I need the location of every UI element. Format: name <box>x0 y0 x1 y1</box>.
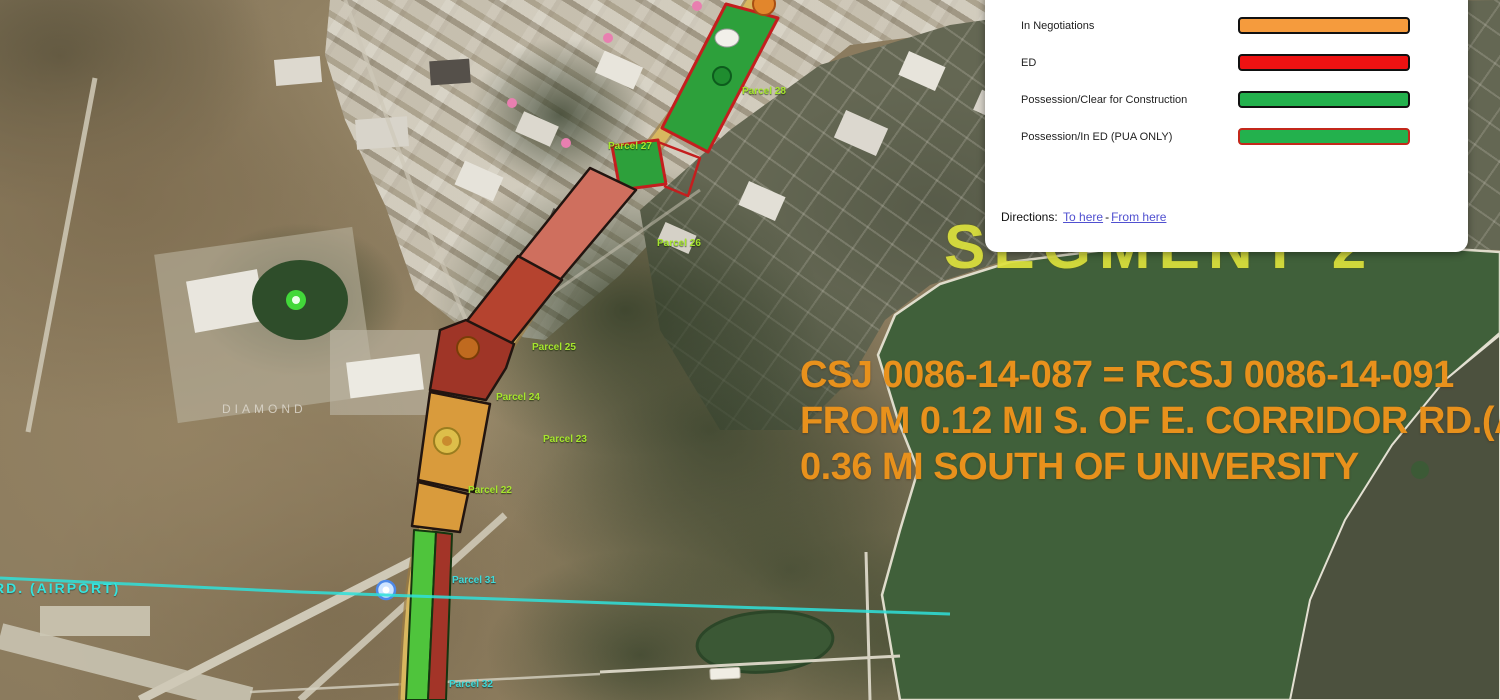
parcel-badge-center <box>442 436 452 446</box>
parcel-badge-icon[interactable] <box>753 0 775 15</box>
parcel-label: Parcel 23 <box>543 434 587 445</box>
project-note-line1: CSJ 0086-14-087 = RCSJ 0086-14-091 <box>800 352 1500 398</box>
directions-separator: - <box>1105 210 1109 224</box>
parcel-label: Parcel 32 <box>449 679 493 690</box>
legend-row-in-negotiations: In Negotiations <box>1021 18 1410 33</box>
airport-road-label: RD. (AIRPORT) <box>0 580 120 596</box>
directions-to-here-link[interactable]: To here <box>1063 210 1103 224</box>
legend-label: Possession/In ED (PUA ONLY) <box>1021 131 1172 143</box>
parcel-ed[interactable] <box>518 168 636 280</box>
directions-row: Directions: To here-From here <box>1001 210 1168 224</box>
parcel-label: Parcel 27 <box>608 141 652 152</box>
legend-label: In Negotiations <box>1021 20 1094 32</box>
map-canvas[interactable]: SEGMENT 2 CSJ 0086-14-087 = RCSJ 0086-14… <box>0 0 1500 700</box>
legend-row-ed: ED <box>1021 55 1410 70</box>
legend-balloon: In Negotiations ED Possession/Clear for … <box>985 0 1468 252</box>
legend-row-possession-clear: Possession/Clear for Construction <box>1021 92 1410 107</box>
parcel-label: Parcel 24 <box>496 392 540 403</box>
legend-swatch-in-negotiations <box>1238 17 1410 34</box>
streetview-placemark-center <box>383 587 390 594</box>
parcel-label: Parcel 26 <box>657 238 701 249</box>
legend-label: Possession/Clear for Construction <box>1021 94 1187 106</box>
legend-label: ED <box>1021 57 1036 69</box>
parcel-label: Parcel 25 <box>532 342 576 353</box>
highway-shield-icon <box>715 29 739 47</box>
directions-label: Directions: <box>1001 210 1058 224</box>
legend-row-possession-in-ed: Possession/In ED (PUA ONLY) <box>1021 129 1410 144</box>
directions-from-here-link[interactable]: From here <box>1111 210 1166 224</box>
parcel-label: Parcel 22 <box>468 485 512 496</box>
legend-rows: In Negotiations ED Possession/Clear for … <box>1021 18 1410 166</box>
ponds <box>252 260 835 677</box>
project-note-line2: FROM 0.12 MI S. OF E. CORRIDOR RD.(A <box>800 398 1500 444</box>
project-note: CSJ 0086-14-087 = RCSJ 0086-14-091 FROM … <box>800 352 1500 490</box>
project-note-line3: 0.36 MI SOUTH OF UNIVERSITY <box>800 444 1500 490</box>
place-label-diamond: DIAMOND <box>222 402 307 416</box>
legend-swatch-possession-clear <box>1238 91 1410 108</box>
parcel-label: Parcel 31 <box>452 575 496 586</box>
green-placemark-center <box>292 296 300 304</box>
legend-swatch-ed <box>1238 54 1410 71</box>
road-name-tag <box>710 667 741 680</box>
parcel-badge-icon[interactable] <box>713 67 731 85</box>
parcel-label: Parcel 28 <box>742 86 786 97</box>
parcel-badge-icon[interactable] <box>457 337 479 359</box>
legend-swatch-possession-in-ed <box>1238 128 1410 145</box>
